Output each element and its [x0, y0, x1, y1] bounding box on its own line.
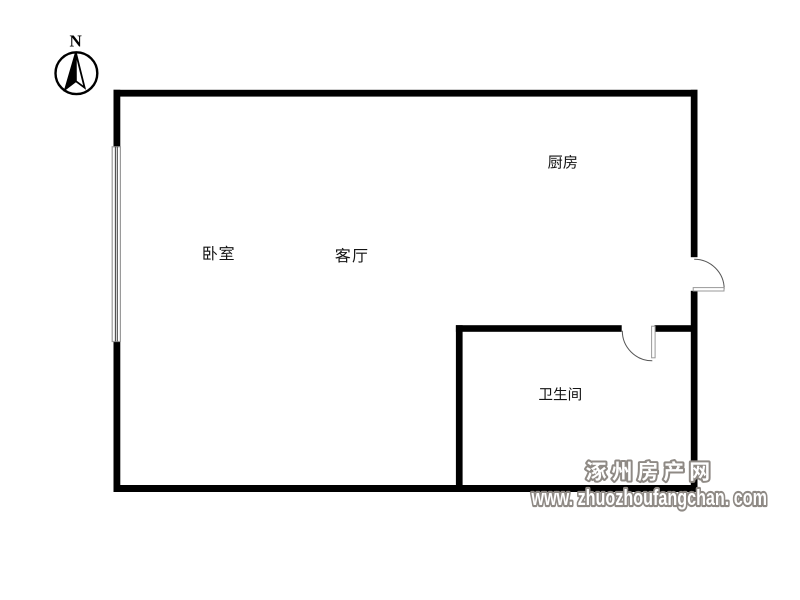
svg-text:N: N [69, 31, 82, 50]
svg-text:www. zhuozhoufangchan. com: www. zhuozhoufangchan. com [531, 485, 767, 510]
